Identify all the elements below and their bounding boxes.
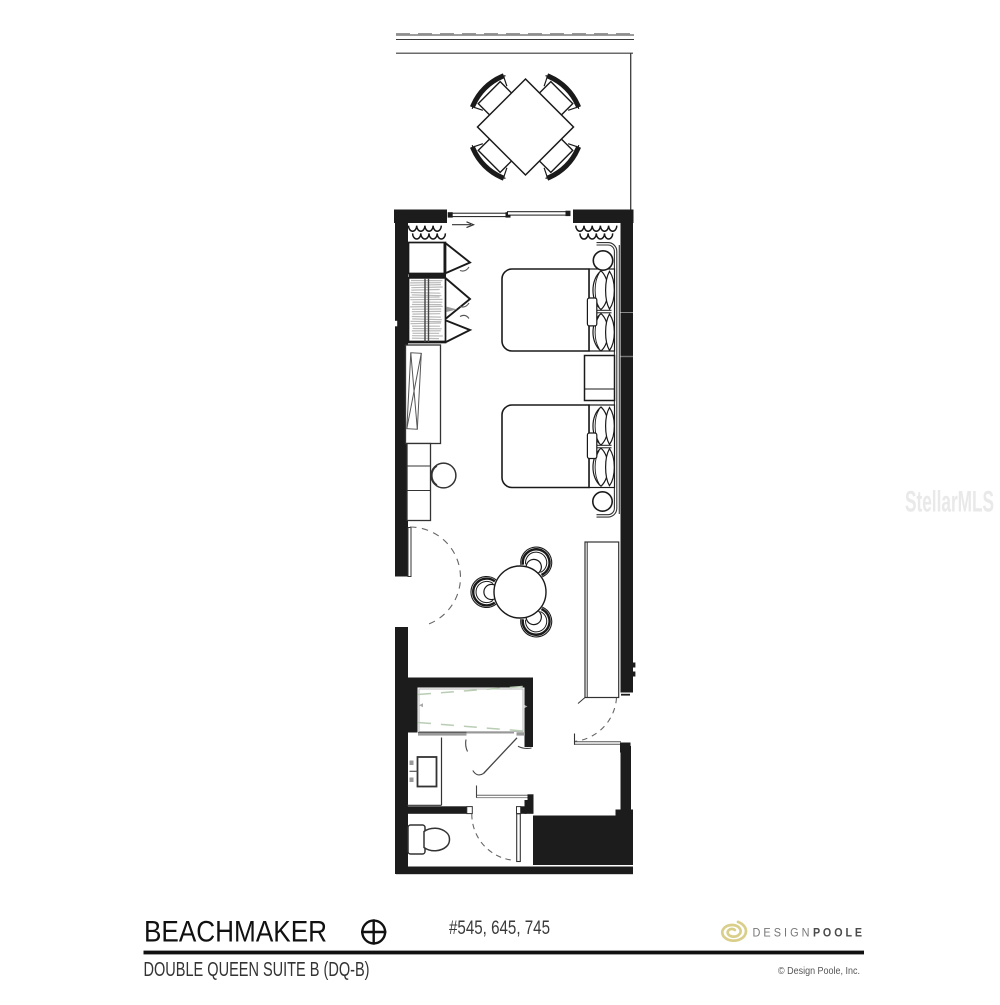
svg-text:© Design Poole, Inc.: © Design Poole, Inc. [778,966,860,977]
svg-text:DOUBLE QUEEN SUITE B (DQ-B): DOUBLE QUEEN SUITE B (DQ-B) [144,959,370,981]
svg-text:#545, 645, 745: #545, 645, 745 [449,917,550,939]
svg-text:BEACHMAKER: BEACHMAKER [144,916,327,949]
svg-text:D E S I G N: D E S I G N [753,928,810,940]
svg-text:P O O L E: P O O L E [813,928,862,940]
svg-text:StellarMLS: StellarMLS [905,486,994,519]
